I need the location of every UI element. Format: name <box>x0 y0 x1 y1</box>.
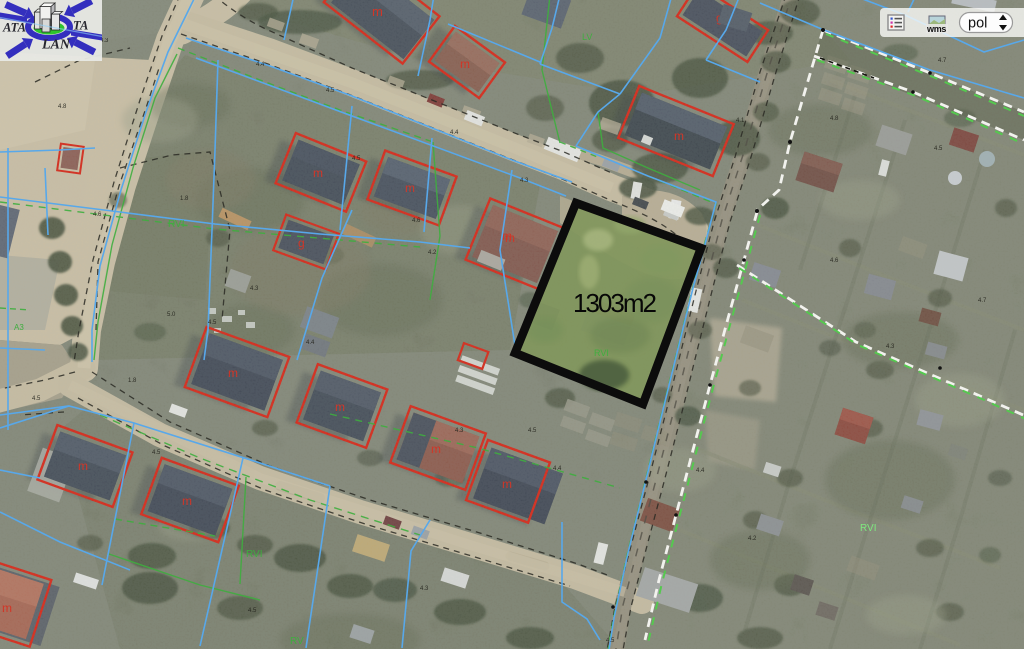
svg-text:RV: RV <box>290 636 304 647</box>
svg-text:4.5: 4.5 <box>152 450 161 456</box>
svg-text:RVI: RVI <box>860 523 877 534</box>
svg-text:4.3: 4.3 <box>886 344 895 350</box>
svg-text:LAN: LAN <box>41 38 71 53</box>
svg-text:LV: LV <box>582 32 592 42</box>
svg-text:4.6: 4.6 <box>830 258 839 264</box>
svg-text:4.7: 4.7 <box>978 298 987 304</box>
svg-text:1.8: 1.8 <box>128 378 137 384</box>
svg-text:4.3: 4.3 <box>250 286 259 292</box>
svg-text:4.4: 4.4 <box>306 340 315 346</box>
svg-text:4.5: 4.5 <box>352 156 361 162</box>
svg-text:4.6: 4.6 <box>412 218 421 224</box>
svg-text:4.3: 4.3 <box>455 428 464 434</box>
svg-text:4.8: 4.8 <box>58 104 67 110</box>
svg-text:wms: wms <box>926 24 946 34</box>
svg-text:4.3: 4.3 <box>520 178 529 184</box>
svg-text:4.4: 4.4 <box>553 466 562 472</box>
svg-text:4.7: 4.7 <box>938 58 947 64</box>
svg-text:4.5: 4.5 <box>934 146 943 152</box>
svg-text:1303m2: 1303m2 <box>573 288 656 318</box>
svg-text:5.0: 5.0 <box>167 312 176 318</box>
svg-text:4.5: 4.5 <box>606 638 615 644</box>
svg-text:RVI: RVI <box>168 219 185 230</box>
svg-text:pol: pol <box>968 16 987 32</box>
svg-text:4.2: 4.2 <box>428 250 437 256</box>
svg-text:RVI: RVI <box>246 549 263 560</box>
svg-text:4.5: 4.5 <box>528 428 537 434</box>
svg-text:4.2: 4.2 <box>748 536 757 542</box>
svg-text:4.4: 4.4 <box>450 130 459 136</box>
svg-text:A3: A3 <box>14 323 24 332</box>
svg-text:4.5: 4.5 <box>208 320 217 326</box>
svg-text:4.8: 4.8 <box>830 116 839 122</box>
svg-text:4.5: 4.5 <box>32 396 41 402</box>
svg-text:4.1: 4.1 <box>736 118 745 124</box>
svg-text:1.8: 1.8 <box>180 196 189 202</box>
svg-text:4.4: 4.4 <box>696 468 705 474</box>
svg-text:4.6: 4.6 <box>93 212 102 218</box>
svg-text:4.5: 4.5 <box>248 608 257 614</box>
svg-text:ATA: ATA <box>2 21 26 35</box>
svg-text:TA: TA <box>73 19 88 33</box>
svg-text:4.3: 4.3 <box>420 586 429 592</box>
svg-text:4.4: 4.4 <box>256 62 265 68</box>
svg-text:4.5: 4.5 <box>326 88 335 94</box>
svg-text:RVI: RVI <box>594 348 609 358</box>
